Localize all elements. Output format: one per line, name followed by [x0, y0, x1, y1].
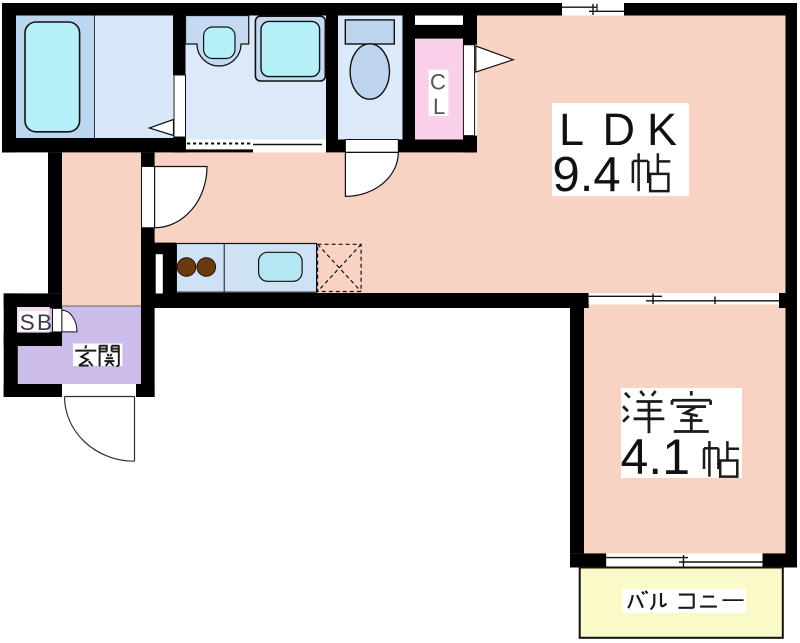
svg-text:C: C	[430, 70, 446, 95]
svg-text:L: L	[433, 94, 445, 119]
svg-text:9.4: 9.4	[553, 148, 621, 202]
svg-text:SB: SB	[20, 310, 54, 335]
svg-text:4.1: 4.1	[621, 429, 691, 485]
svg-text:K: K	[647, 104, 677, 155]
